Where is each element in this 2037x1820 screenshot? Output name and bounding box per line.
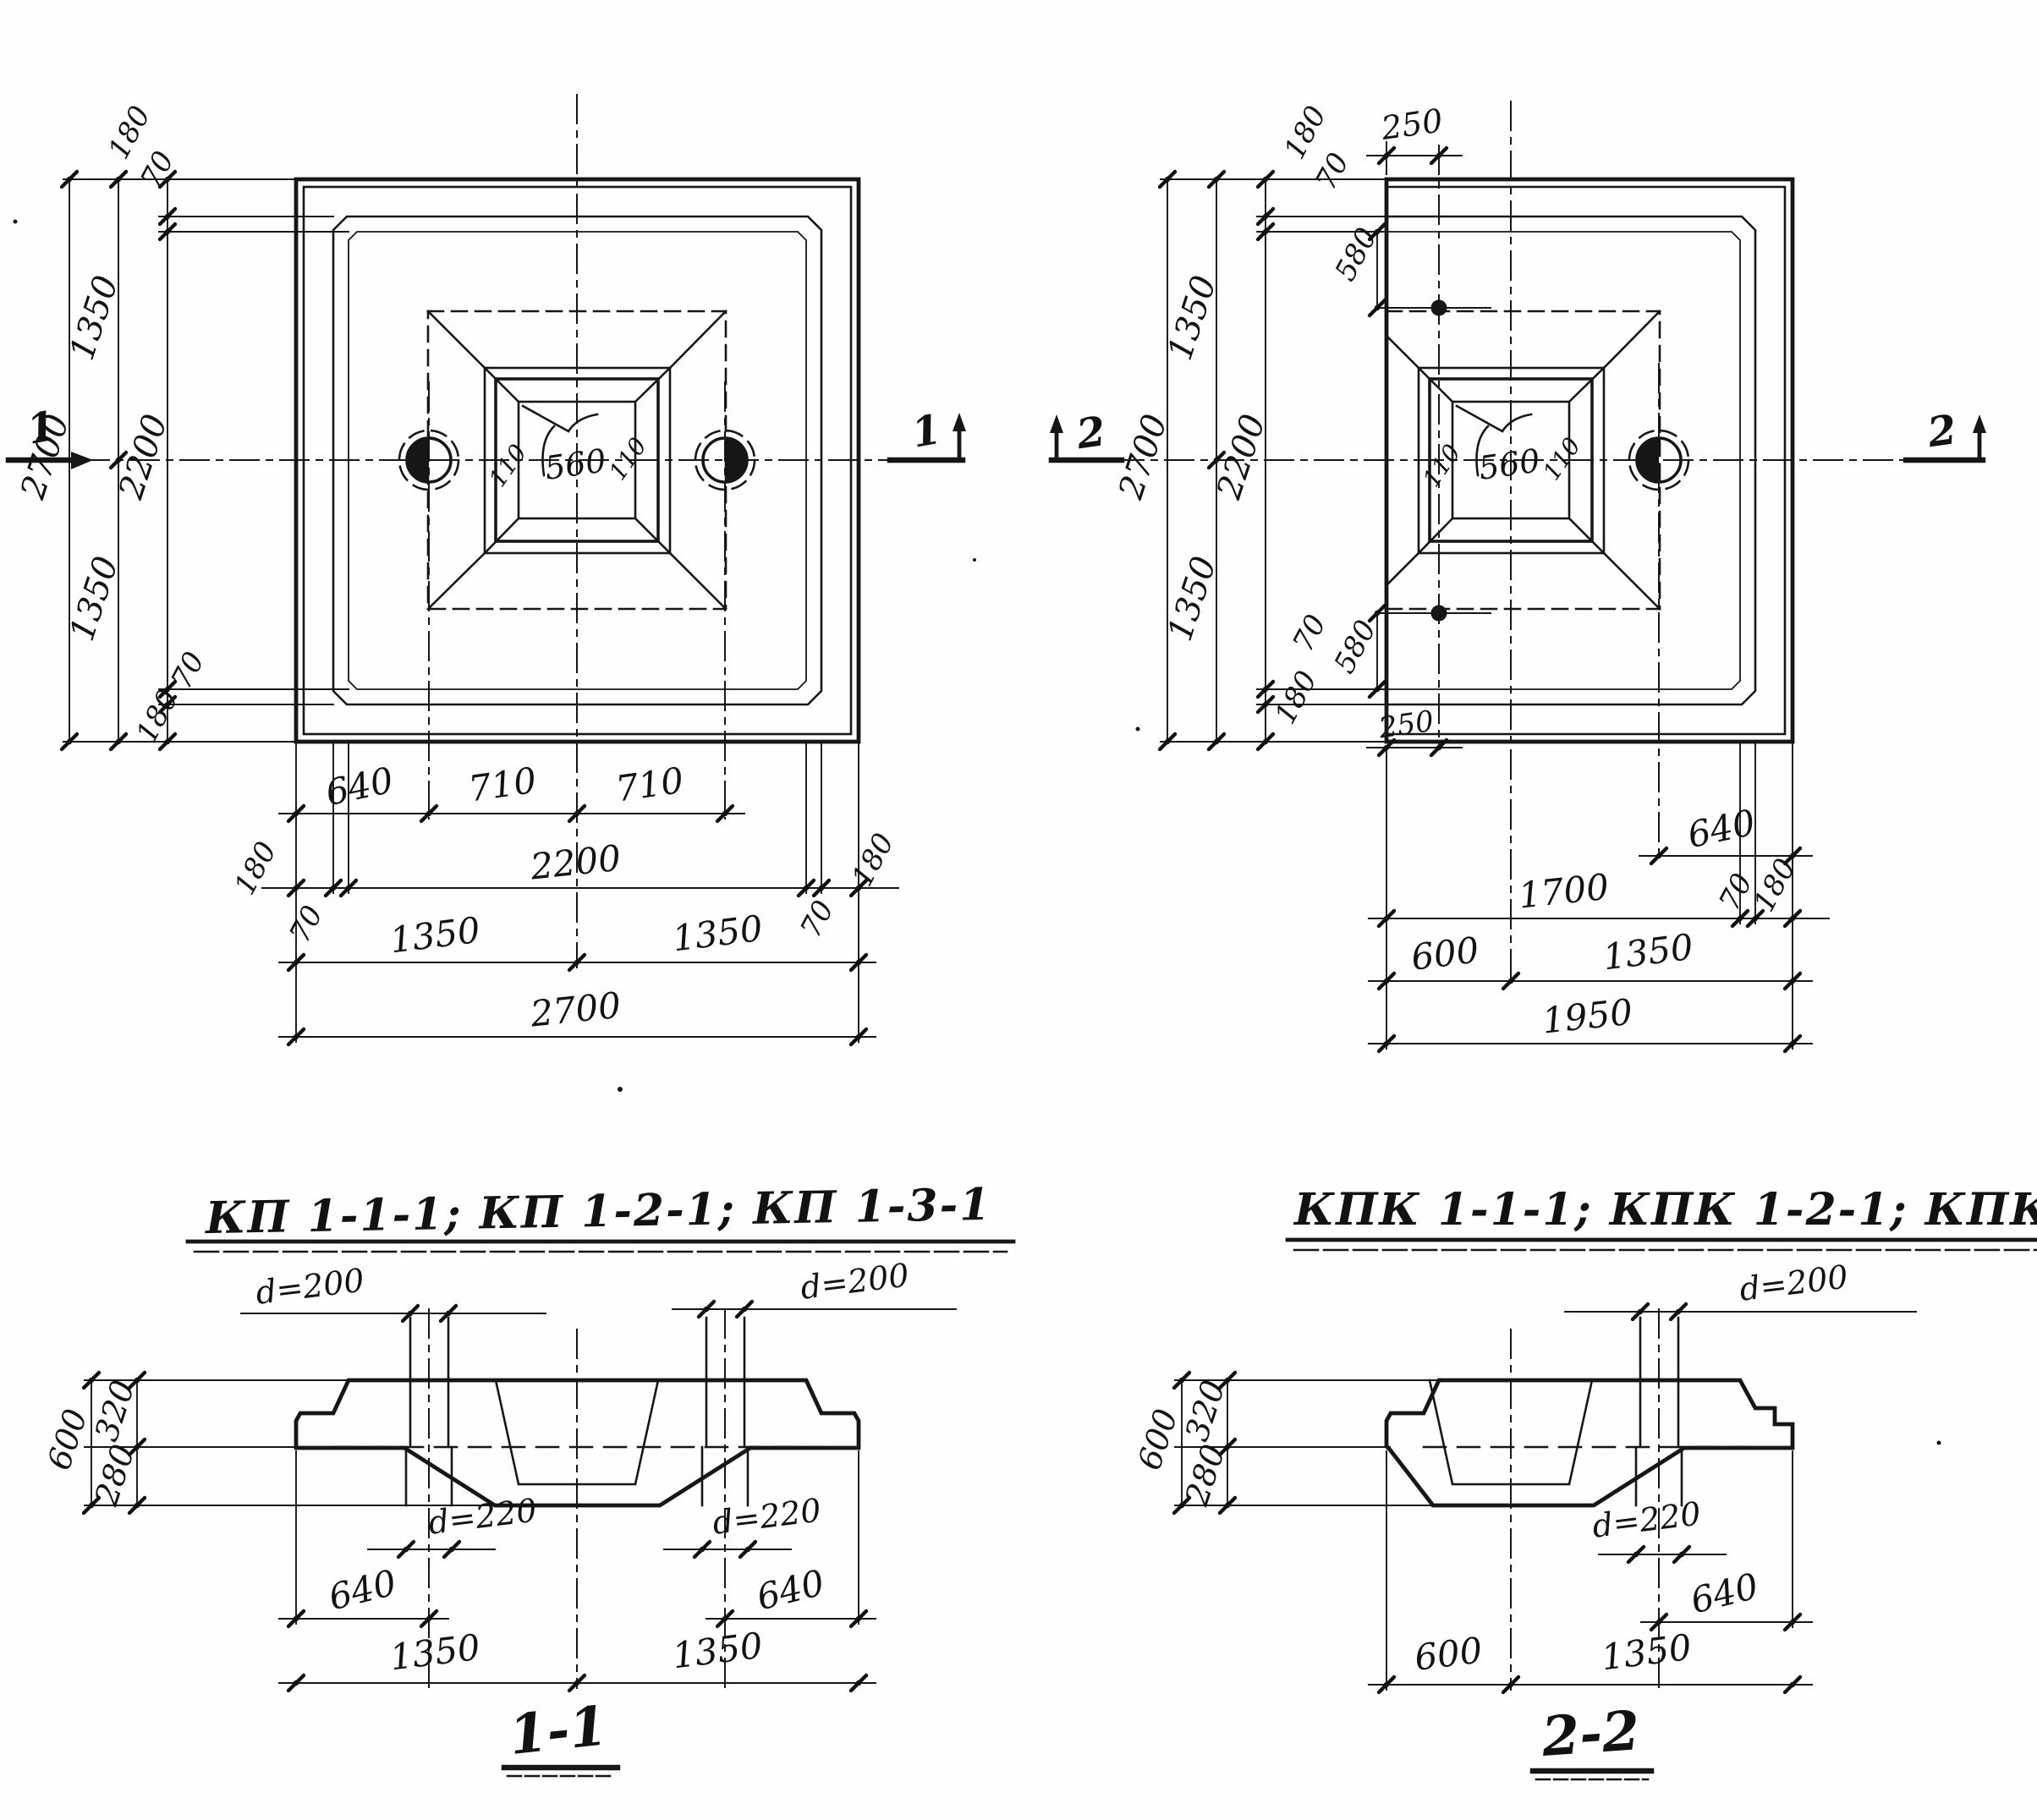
plan-right-dims-bottom: 640 1700 70 180 600 1350 1950 [1369,742,1829,1049]
plan-left-dims-left: 2700 1350 1350 2200 180 70 70 180 [14,101,349,748]
title-kp: КП 1-1-1; КП 1-2-1; КП 1-3-1 [204,1179,992,1244]
svg-text:640: 640 [1687,1565,1763,1621]
svg-text:180: 180 [845,828,901,892]
svg-text:110: 110 [1417,439,1466,492]
svg-text:320: 320 [88,1376,142,1446]
svg-text:70: 70 [134,145,181,194]
svg-text:1350: 1350 [670,907,765,960]
plan-right-dim-250: 250 250 [1367,101,1462,748]
svg-text:2700: 2700 [528,984,623,1035]
svg-text:70: 70 [1286,609,1333,657]
plan-right-loop-bottom [1377,606,1491,690]
svg-text:250: 250 [1376,704,1436,746]
svg-text:180: 180 [1268,666,1324,730]
svg-text:1350: 1350 [1161,271,1224,365]
svg-text:1350: 1350 [670,1625,765,1677]
svg-text:640: 640 [753,1561,829,1618]
svg-text:600: 600 [1412,1629,1485,1678]
svg-text:710: 710 [466,759,539,810]
svg-text:d=220: d=220 [1590,1494,1703,1544]
svg-text:580: 580 [1327,615,1383,679]
blueprint-page: 1 1 2700 1350 1350 2200 180 70 70 180 64… [0,0,2037,1820]
svg-text:320: 320 [1178,1376,1233,1446]
svg-text:110: 110 [603,432,652,485]
section-1-1: d=200 d=200 d=220 d=220 600 320 280 640 … [41,1256,956,1776]
pocket-size-label: 560 [542,441,608,487]
svg-text:560: 560 [1476,441,1542,487]
svg-text:1: 1 [909,406,945,458]
svg-text:70: 70 [793,895,841,943]
title-kpk: КПК 1-1-1; КПК 1-2-1; КПК 1-3-1 [1293,1184,2037,1236]
scan-specks [14,220,1941,1445]
section-2-outline [1386,1380,1793,1505]
svg-text:710: 710 [613,759,686,810]
section-1-label: 1-1 [506,1694,610,1768]
svg-text:70: 70 [1309,147,1356,195]
svg-text:1350: 1350 [1161,551,1224,645]
section-mark-1-right: 1 [890,406,966,460]
svg-text:d=200: d=200 [1738,1258,1850,1307]
svg-text:600: 600 [1131,1405,1185,1475]
svg-text:2: 2 [1073,408,1108,458]
plan-right: 2 2 2700 1350 1350 2200 180 70 580 70 58… [1050,101,1986,1049]
section-2-label: 2-2 [1539,1699,1642,1769]
svg-text:2700: 2700 [14,409,78,504]
svg-text:2: 2 [1924,406,1959,457]
svg-text:d=200: d=200 [799,1256,911,1306]
drawing-canvas: 1 1 2700 1350 1350 2200 180 70 70 180 64… [0,0,2037,1820]
svg-text:110: 110 [483,439,532,492]
svg-text:250: 250 [1378,101,1445,147]
svg-text:2700: 2700 [1112,409,1176,504]
svg-text:2200: 2200 [528,837,623,888]
plan-left: 1 1 2700 1350 1350 2200 180 70 70 180 64… [8,95,966,1042]
svg-text:1350: 1350 [1599,1626,1694,1679]
svg-text:1350: 1350 [1600,926,1695,979]
svg-text:1350: 1350 [387,909,482,962]
svg-text:70: 70 [283,900,330,948]
svg-text:640: 640 [1684,802,1760,857]
section-mark-2-right: 2 [1906,406,1986,460]
svg-text:600: 600 [1408,929,1481,978]
svg-text:600: 600 [41,1405,95,1475]
svg-text:1950: 1950 [1540,991,1634,1042]
svg-text:640: 640 [325,1561,401,1618]
titles: КП 1-1-1; КП 1-2-1; КП 1-3-1 КПК 1-1-1; … [188,1179,2037,1252]
svg-text:1700: 1700 [1517,866,1611,917]
plan-right-loop-top [1377,232,1491,316]
svg-text:d=220: d=220 [426,1491,539,1541]
section-mark-2-left: 2 [1050,408,1122,460]
svg-text:180: 180 [228,836,283,901]
svg-text:110: 110 [1537,432,1586,485]
svg-text:1350: 1350 [387,1626,482,1679]
plan-right-dims-left: 2700 1350 1350 2200 180 70 580 70 580 18… [1112,101,1386,742]
svg-text:d=200: d=200 [254,1261,366,1311]
svg-text:1350: 1350 [63,551,126,645]
section-2-2: d=200 d=220 600 320 280 640 600 1350 2-2 [1131,1258,1916,1779]
svg-text:180: 180 [129,684,185,748]
svg-text:1350: 1350 [63,271,126,365]
svg-text:d=220: d=220 [711,1491,823,1541]
